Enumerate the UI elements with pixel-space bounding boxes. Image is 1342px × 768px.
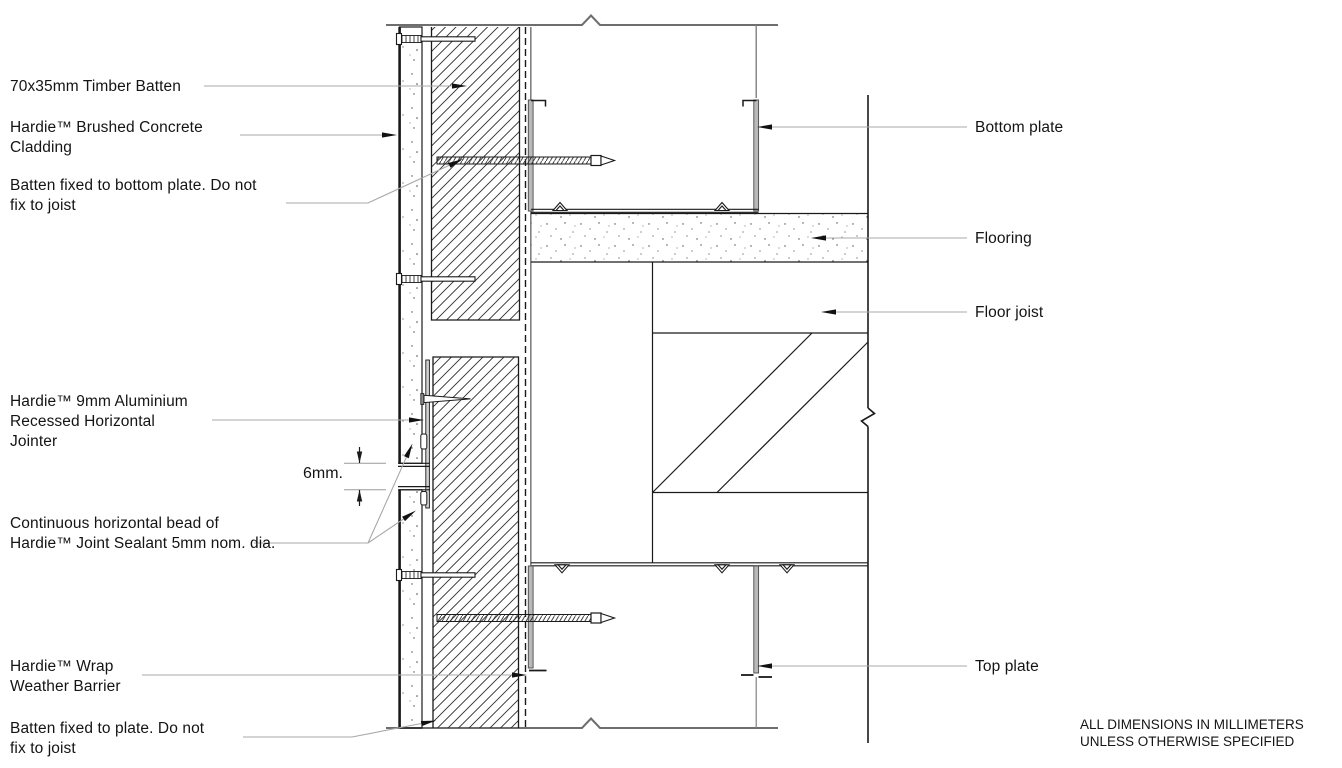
- floor-joist-section: [653, 262, 869, 563]
- timber-batten-upper: [432, 27, 520, 320]
- dimensions-note: ALL DIMENSIONS IN MILLIMETERS UNLESS OTH…: [1080, 716, 1304, 750]
- cladding-upper-panel: [400, 27, 423, 463]
- label-batten-fixed-plate: Batten fixed to plate. Do not fix to joi…: [10, 719, 204, 759]
- drawing-sheet: 70x35mm Timber Batten Hardie™ Brushed Co…: [0, 0, 1342, 768]
- top-plate-right-flange: [754, 566, 759, 673]
- dimension-6mm: [344, 447, 386, 506]
- cladding-lower-panel: [400, 490, 423, 728]
- label-sealant: Continuous horizontal bead of Hardie™ Jo…: [10, 514, 275, 554]
- top-plate-section: [528, 563, 868, 728]
- dimension-6mm-text: 6mm.: [303, 465, 343, 483]
- section-detail-drawing: [0, 0, 1342, 768]
- label-timber-batten: 70x35mm Timber Batten: [10, 77, 181, 97]
- bottom-plate-right-flange: [754, 100, 759, 211]
- top-cut-line: [386, 16, 778, 26]
- leader-lines: [142, 86, 967, 737]
- leader-batten-fixed-bottom: [286, 165, 449, 203]
- label-batten-fixed-bottom: Batten fixed to bottom plate. Do not fix…: [10, 176, 257, 216]
- label-bottom-plate: Bottom plate: [975, 118, 1063, 138]
- leader-batten-fixed-plate: [243, 724, 421, 738]
- jointer-clip: [421, 434, 427, 449]
- jointer-clip: [421, 492, 427, 506]
- vertical-break-symbol: [862, 408, 875, 427]
- label-flooring: Flooring: [975, 229, 1032, 249]
- bottom-plate-section: [528, 25, 758, 212]
- label-wrap: Hardie™ Wrap Weather Barrier: [10, 657, 121, 697]
- timber-batten-lower: [433, 357, 519, 728]
- batten-fixing-screw: [437, 156, 615, 166]
- label-top-plate: Top plate: [975, 657, 1039, 677]
- batten-fixing-screw: [437, 613, 615, 623]
- jointer-screw-head: [421, 394, 424, 405]
- joist-diagonal-2: [717, 342, 868, 493]
- label-jointer: Hardie™ 9mm Aluminium Recessed Horizonta…: [10, 392, 188, 452]
- label-cladding: Hardie™ Brushed Concrete Cladding: [10, 118, 203, 158]
- bottom-plate-left-flange: [528, 100, 533, 211]
- joist-diagonal-1: [653, 333, 813, 493]
- right-wall-line: [862, 95, 875, 743]
- label-floor-joist: Floor joist: [975, 303, 1043, 323]
